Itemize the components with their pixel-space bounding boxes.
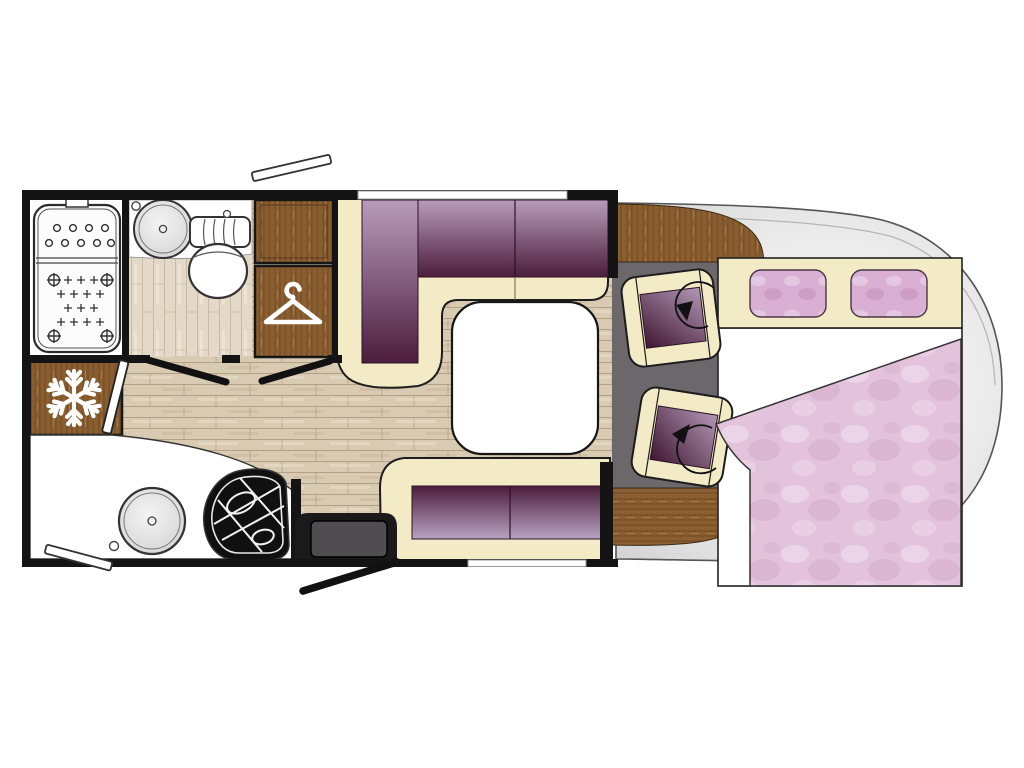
wall-wardrobe-side (332, 198, 338, 358)
pillow-left (750, 270, 826, 317)
hanging-wardrobe (255, 266, 333, 357)
top-open-window-flap (252, 155, 332, 182)
entry-step (295, 513, 397, 563)
side-sofa-cushion (412, 486, 604, 539)
wall-bathroom-bottom (28, 355, 150, 363)
motorhome-floorplan (0, 0, 1024, 768)
washbasin-drain (159, 225, 166, 232)
overhead-cabinet (255, 200, 333, 263)
l-sofa-side-cushion (362, 200, 418, 363)
toilet-flush-button (224, 211, 231, 218)
toilet-cistern (190, 217, 250, 247)
wall-stub-bottom-right (600, 462, 613, 567)
pillow-right (851, 270, 927, 317)
top-window (358, 191, 567, 199)
washbasin-tap (132, 202, 140, 210)
shower (30, 196, 124, 356)
wall-bathroom-divider (122, 200, 129, 357)
kitchen-tap (110, 542, 119, 551)
dinette-table (452, 302, 598, 454)
seat-front-cushion (640, 287, 706, 348)
wall-door-stub (222, 355, 240, 363)
bottom-window (468, 560, 586, 567)
kitchen-sink-drain (148, 517, 156, 525)
wall-stub-top-right (608, 190, 618, 278)
wall-left (22, 190, 30, 567)
floorplan-canvas (0, 0, 1024, 768)
toilet (189, 211, 250, 299)
